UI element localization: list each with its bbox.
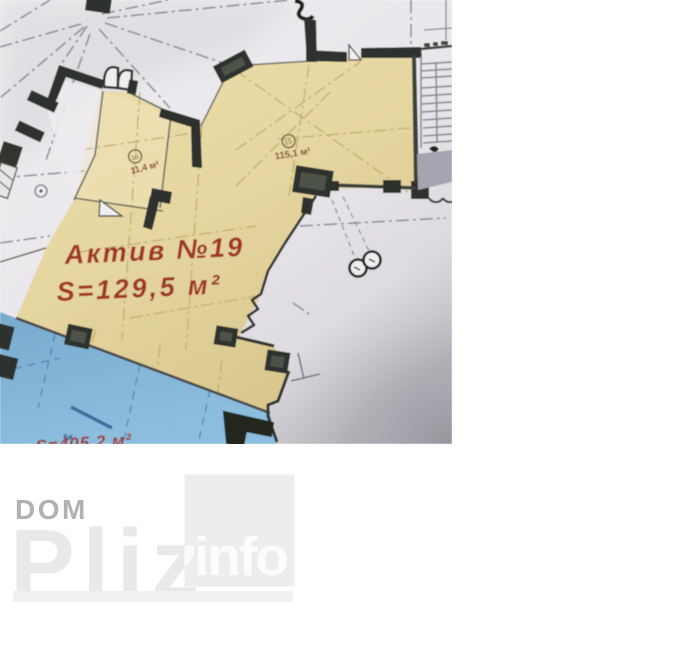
svg-text:info: info xyxy=(194,525,287,587)
svg-text:15: 15 xyxy=(284,139,293,147)
